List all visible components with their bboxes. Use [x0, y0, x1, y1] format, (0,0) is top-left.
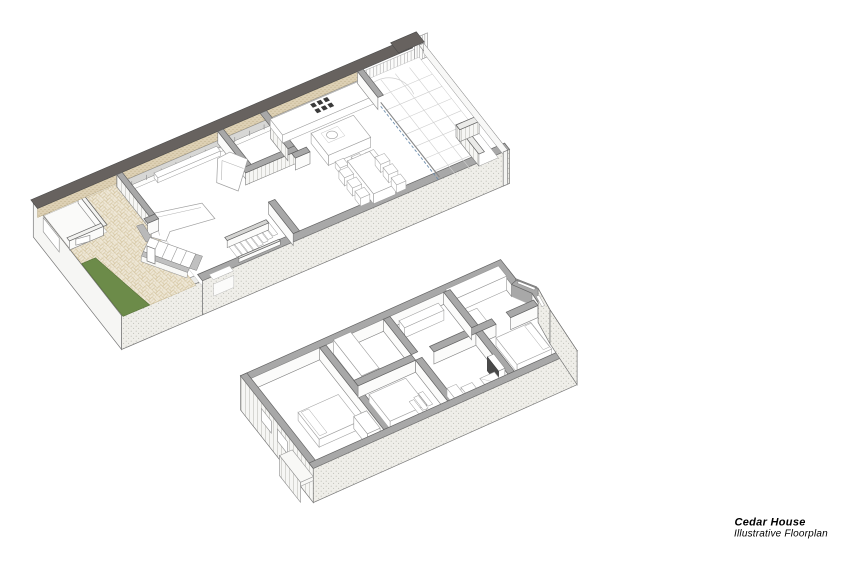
svg-text:Illustrative Floorplan: Illustrative Floorplan	[734, 529, 828, 540]
svg-text:Cedar House: Cedar House	[735, 517, 806, 529]
